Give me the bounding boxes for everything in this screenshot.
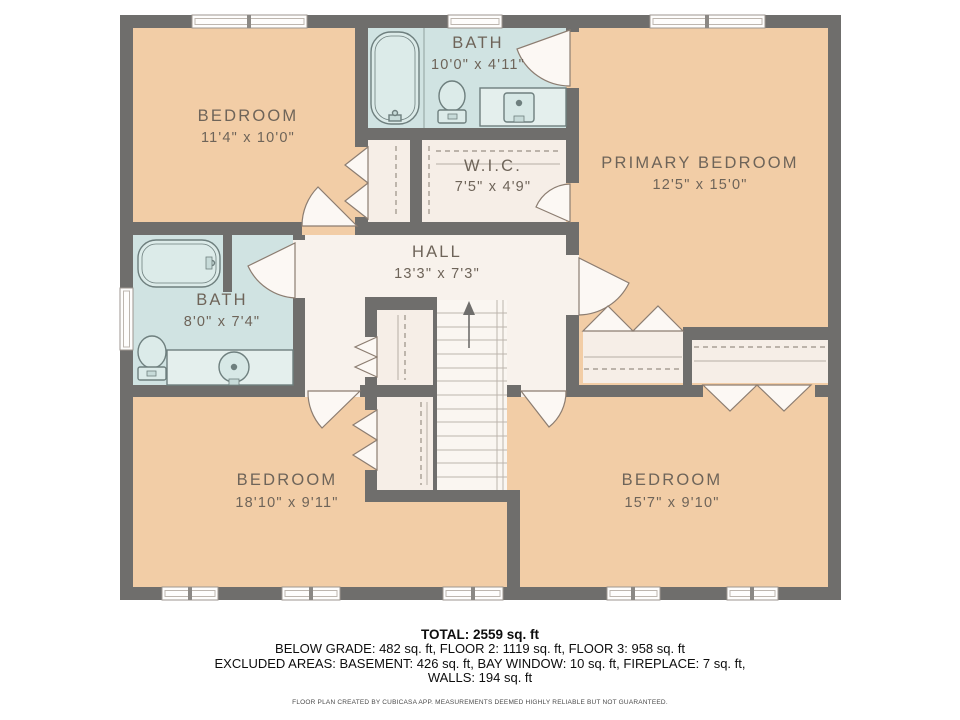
disclaimer-footnote: FLOOR PLAN CREATED BY CUBICASA APP. MEAS… bbox=[0, 699, 960, 706]
label-wic: W.I.C. bbox=[464, 157, 522, 175]
wall-h4c bbox=[507, 385, 521, 397]
label-bath-left: BATH bbox=[196, 291, 248, 309]
wall-h1a bbox=[133, 222, 302, 235]
wall-bedrooms-divider bbox=[507, 502, 520, 587]
label-primary-bedroom: PRIMARY BEDROOM bbox=[601, 154, 798, 172]
dims-hall: 13'3" x 7'3" bbox=[394, 266, 480, 282]
floor-plan-svg: BEDROOM 11'4" x 10'0" BATH 10'0" x 4'11"… bbox=[0, 0, 960, 622]
closet-b-area bbox=[377, 397, 433, 490]
summary-line-1: BELOW GRADE: 482 sq. ft, FLOOR 2: 1119 s… bbox=[0, 642, 960, 657]
dims-bath-left: 8'0" x 7'4" bbox=[184, 314, 261, 330]
label-bedroom-bottomright: BEDROOM bbox=[622, 471, 723, 489]
wall-v1a bbox=[355, 28, 368, 147]
window-top-bedroom bbox=[192, 15, 307, 28]
sink-vanity-icon bbox=[480, 88, 566, 126]
label-bedroom-topleft: BEDROOM bbox=[198, 107, 299, 125]
summary-line-2: EXCLUDED AREAS: BASEMENT: 426 sq. ft, BA… bbox=[0, 657, 960, 672]
dims-bath-top: 10'0" x 4'11" bbox=[431, 57, 525, 73]
wall-v5b bbox=[365, 377, 377, 385]
wall-v3d bbox=[566, 315, 579, 397]
sink-vanity-icon-2 bbox=[167, 350, 293, 385]
dims-primary-bedroom: 12'5" x 15'0" bbox=[652, 177, 747, 193]
floorplan-page: { "plan": { "rooms": [ {"name": "BEDROOM… bbox=[0, 0, 960, 720]
window-left-bath bbox=[120, 288, 133, 350]
wall-v2 bbox=[410, 140, 422, 222]
dims-wic: 7'5" x 4'9" bbox=[455, 179, 532, 195]
wall-closeta-top bbox=[365, 297, 437, 310]
wall-bathright-b bbox=[293, 298, 305, 385]
wall-closetright-top bbox=[683, 327, 828, 340]
label-hall: HALL bbox=[412, 243, 462, 261]
window-top-bath bbox=[448, 15, 502, 28]
dims-bedroom-bottomleft: 18'10" x 9'11" bbox=[235, 495, 338, 511]
wall-v5a bbox=[365, 310, 377, 337]
summary-line-3: WALLS: 194 sq. ft bbox=[0, 671, 960, 686]
wall-h4b bbox=[360, 385, 437, 397]
wall-h1b bbox=[355, 222, 579, 235]
window-bottom-5 bbox=[727, 587, 778, 600]
label-bath-top: BATH bbox=[452, 34, 504, 52]
wall-v3c bbox=[566, 225, 579, 255]
window-bottom-4 bbox=[607, 587, 660, 600]
dims-bedroom-topleft: 11'4" x 10'0" bbox=[201, 130, 295, 146]
bathtub-icon bbox=[371, 32, 419, 124]
wall-v9 bbox=[683, 340, 692, 397]
window-bottom-2 bbox=[282, 587, 340, 600]
bathtub-icon-2 bbox=[138, 240, 220, 287]
wall-h4d bbox=[566, 385, 703, 397]
wall-tub-nook bbox=[223, 235, 232, 292]
wall-h4a bbox=[120, 385, 305, 397]
window-top-primary bbox=[650, 15, 765, 28]
wall-h4e bbox=[815, 385, 841, 397]
closet-strip-area bbox=[368, 140, 410, 222]
toilet-icon-2 bbox=[138, 336, 166, 380]
area-summary: TOTAL: 2559 sq. ft BELOW GRADE: 482 sq. … bbox=[0, 627, 960, 686]
wall-v5d bbox=[365, 470, 377, 490]
wall-bathright-a bbox=[293, 235, 305, 240]
wall-bath-bottom bbox=[355, 128, 579, 140]
wall-exterior-right bbox=[828, 15, 841, 600]
wall-stairs-left bbox=[433, 310, 437, 490]
total-area: TOTAL: 2559 sq. ft bbox=[0, 627, 960, 642]
wall-stairs-bottom bbox=[365, 490, 520, 502]
window-bottom-1 bbox=[162, 587, 218, 600]
label-bedroom-bottomleft: BEDROOM bbox=[237, 471, 338, 489]
floor-plan: BEDROOM 11'4" x 10'0" BATH 10'0" x 4'11"… bbox=[0, 0, 960, 622]
window-bottom-3 bbox=[443, 587, 503, 600]
wall-v3b bbox=[566, 88, 579, 183]
toilet-icon bbox=[438, 81, 466, 123]
dims-bedroom-bottomright: 15'7" x 9'10" bbox=[624, 495, 719, 511]
wall-v5c bbox=[365, 397, 377, 410]
